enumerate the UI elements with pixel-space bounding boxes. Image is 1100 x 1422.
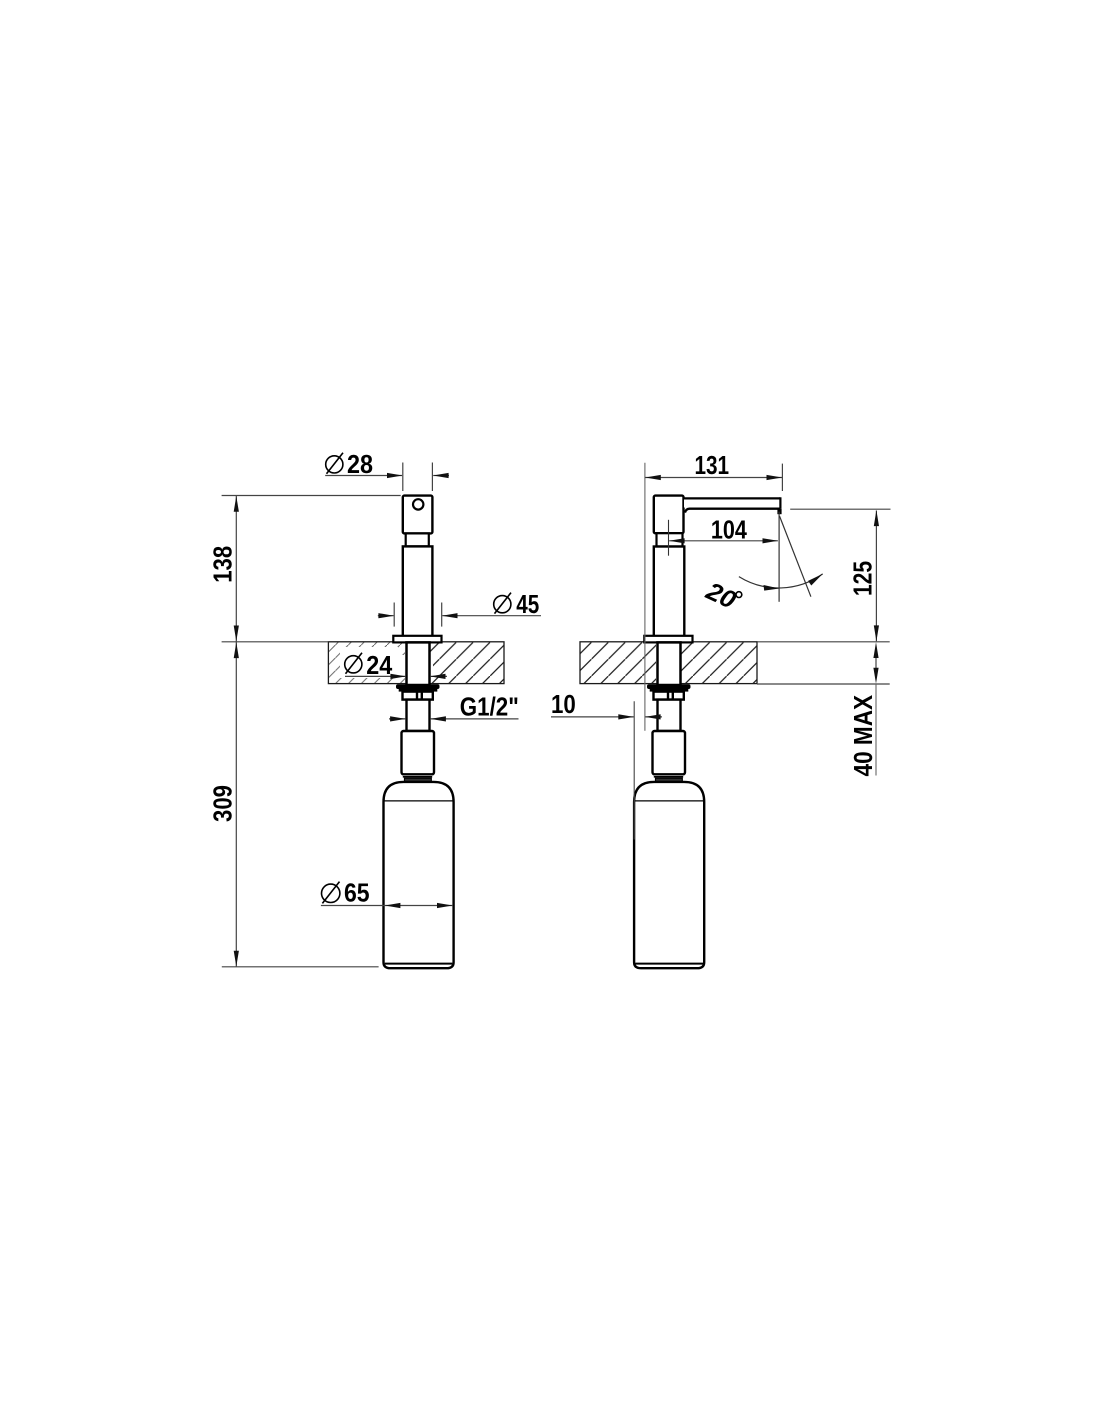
svg-text:104: 104 — [711, 514, 747, 544]
svg-text:40 MAX: 40 MAX — [848, 694, 878, 776]
svg-text:138: 138 — [208, 546, 238, 583]
svg-text:131: 131 — [695, 450, 730, 480]
svg-text:10: 10 — [551, 689, 576, 719]
svg-text:45: 45 — [516, 589, 539, 619]
svg-text:65: 65 — [344, 877, 370, 907]
svg-text:28: 28 — [347, 449, 373, 479]
svg-text:G1/2": G1/2" — [460, 691, 519, 721]
svg-text:24: 24 — [366, 650, 392, 680]
svg-text:309: 309 — [208, 785, 238, 822]
svg-text:125: 125 — [848, 561, 878, 596]
